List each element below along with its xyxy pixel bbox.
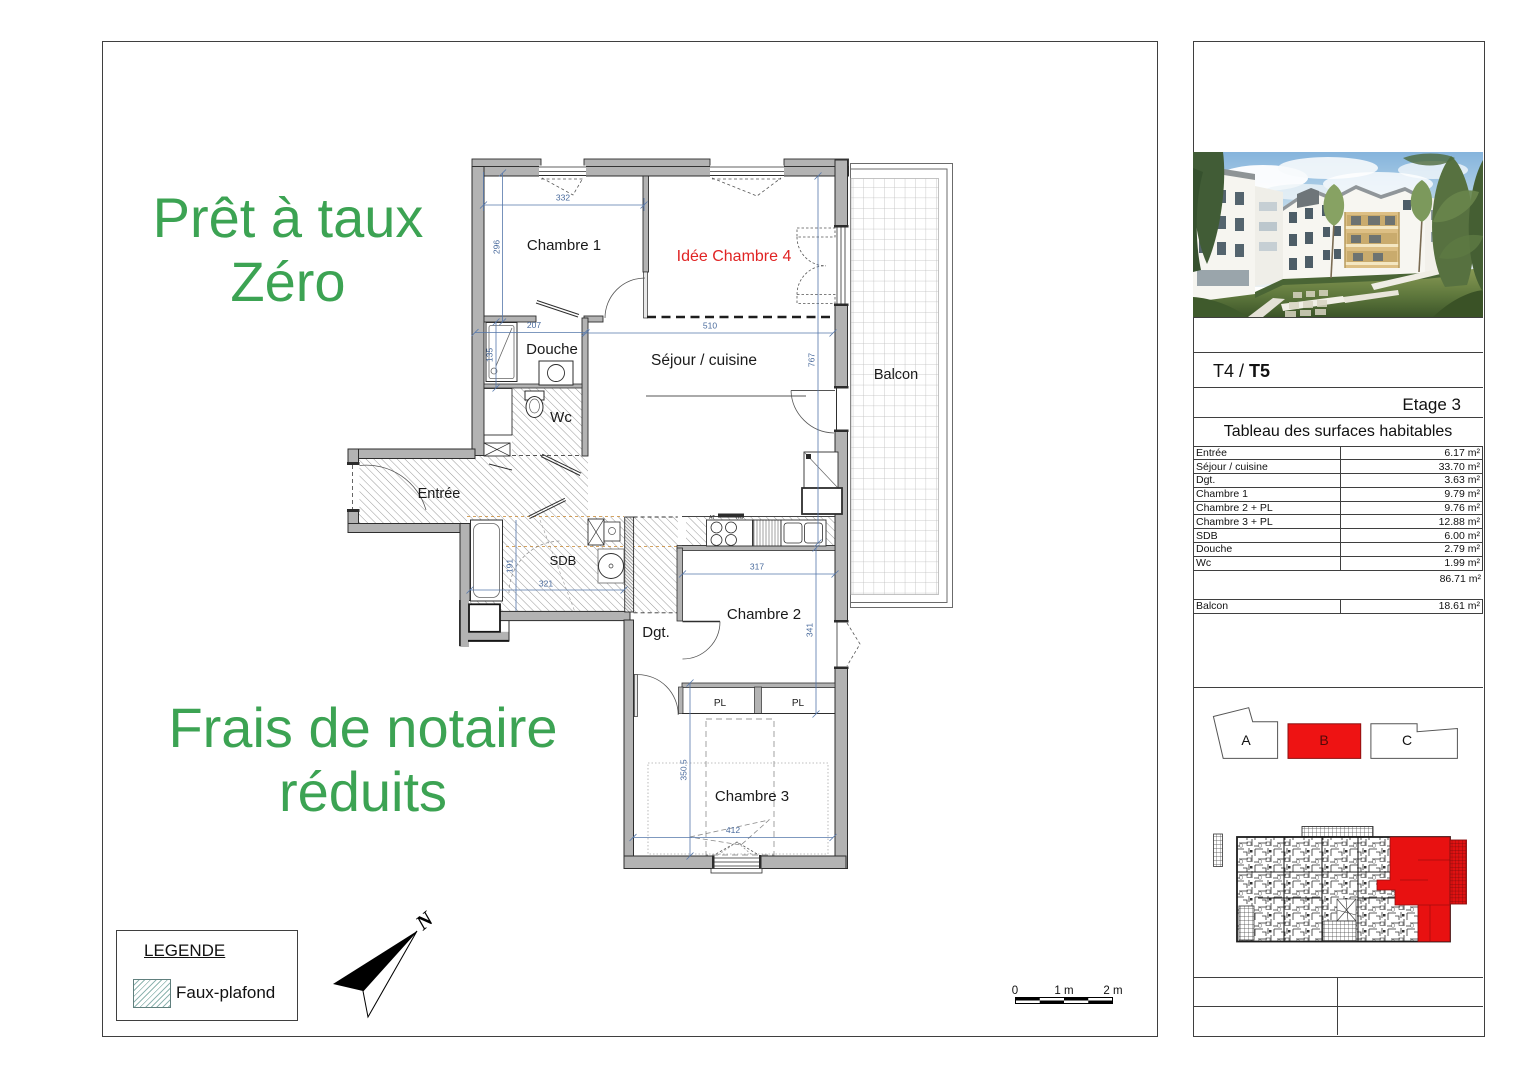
svg-text:317: 317 [750, 562, 764, 572]
svg-text:Chambre 3: Chambre 3 [715, 788, 789, 805]
svg-text:AT: AT [709, 515, 715, 521]
svg-text:B: B [1319, 732, 1328, 748]
svg-text:135: 135 [485, 348, 495, 362]
svg-text:Chambre 1: Chambre 1 [527, 237, 601, 254]
svg-text:321: 321 [539, 579, 553, 589]
svg-text:Douche: Douche [526, 341, 578, 358]
svg-text:207: 207 [527, 320, 541, 330]
svg-text:SDB: SDB [550, 553, 577, 568]
svg-text:PL: PL [792, 698, 805, 709]
svg-text:412: 412 [726, 825, 740, 835]
svg-text:296: 296 [492, 240, 502, 254]
svg-text:767: 767 [807, 353, 817, 367]
svg-text:350.5: 350.5 [679, 759, 689, 781]
svg-text:Idée Chambre 4: Idée Chambre 4 [677, 248, 792, 265]
svg-text:2 m: 2 m [1103, 985, 1122, 997]
svg-text:332: 332 [556, 193, 570, 203]
svg-text:Chambre 2: Chambre 2 [727, 606, 801, 623]
svg-text:PL: PL [714, 698, 727, 709]
svg-text:Dgt.: Dgt. [642, 624, 670, 641]
svg-text:C: C [1402, 732, 1412, 748]
svg-text:510: 510 [703, 321, 717, 331]
svg-text:0: 0 [1012, 985, 1018, 997]
svg-text:341: 341 [805, 623, 815, 637]
svg-text:RO: RO [736, 515, 744, 521]
svg-text:Wc: Wc [550, 409, 572, 426]
svg-text:191: 191 [505, 559, 515, 573]
svg-text:Séjour / cuisine: Séjour / cuisine [651, 352, 757, 369]
svg-text:N: N [410, 906, 438, 935]
svg-text:1 m: 1 m [1054, 985, 1073, 997]
svg-text:Entrée: Entrée [418, 486, 461, 502]
svg-text:A: A [1241, 732, 1251, 748]
svg-text:Balcon: Balcon [874, 367, 918, 383]
